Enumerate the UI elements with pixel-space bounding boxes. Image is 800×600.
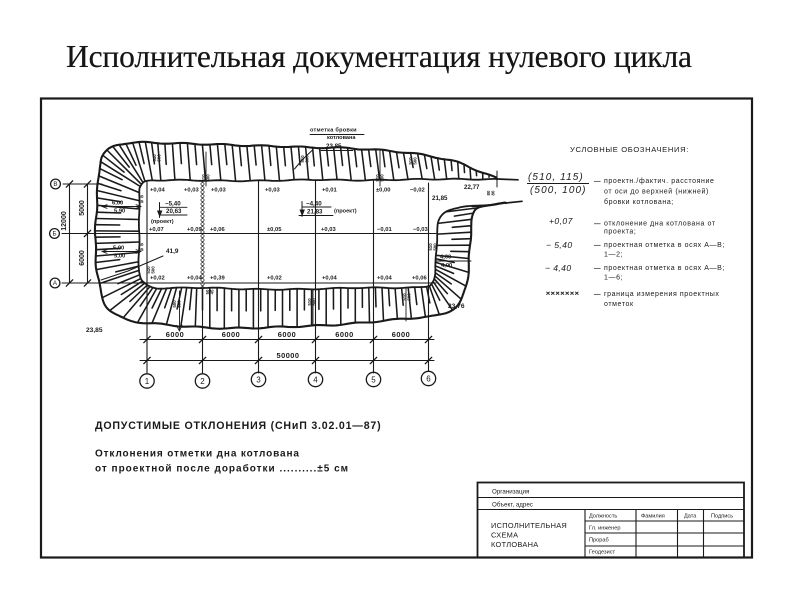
svg-text:6000: 6000 [222, 330, 240, 339]
svg-text:− 5,40: − 5,40 [546, 240, 573, 250]
svg-text:Геодезист: Геодезист [589, 550, 615, 556]
svg-text:Отклонения отметки дна котлова: Отклонения отметки дна котлована [95, 449, 300, 460]
svg-text:5: 5 [371, 375, 376, 384]
svg-text:6000: 6000 [335, 330, 353, 339]
svg-text:+0,04: +0,04 [187, 276, 202, 282]
svg-text:(проект): (проект) [334, 209, 357, 215]
svg-text:Объект, адрес: Объект, адрес [492, 502, 533, 509]
svg-text:+0,01: +0,01 [322, 188, 337, 194]
svg-text:КОТЛОВАНА: КОТЛОВАНА [491, 540, 539, 549]
svg-text:50000: 50000 [276, 351, 299, 360]
svg-text:отметка бровки: отметка бровки [310, 127, 357, 134]
svg-text:500: 500 [305, 155, 310, 163]
svg-text:±0,05: ±0,05 [267, 227, 282, 233]
svg-text:−0,03: −0,03 [413, 227, 428, 233]
svg-text:4: 4 [313, 375, 318, 384]
svg-text:1—6;: 1—6; [604, 275, 623, 282]
svg-text:23,85: 23,85 [326, 143, 342, 150]
svg-text:80: 80 [491, 190, 496, 195]
svg-text:500: 500 [312, 298, 317, 306]
svg-text:+0,04: +0,04 [150, 188, 165, 194]
svg-text:Фамилия: Фамилия [641, 514, 665, 520]
svg-text:500: 500 [151, 266, 156, 274]
svg-text:отклонение дна котлована от: отклонение дна котлована от [604, 221, 716, 228]
svg-text:500: 500 [407, 293, 412, 301]
svg-text:6: 6 [426, 374, 431, 383]
svg-text:+0,04: +0,04 [322, 276, 337, 282]
svg-text:граница измерения проектных: граница измерения проектных [604, 291, 720, 298]
svg-text:—: — [594, 291, 601, 298]
svg-text:500: 500 [206, 174, 211, 182]
svg-text:котлована: котлована [327, 135, 356, 141]
svg-text:+0,39: +0,39 [210, 276, 225, 282]
svg-text:Подпись: Подпись [711, 514, 733, 520]
svg-text:−0,02: −0,02 [410, 188, 425, 194]
svg-text:23,85: 23,85 [86, 327, 103, 334]
svg-text:от проектной после доработки .: от проектной после доработки ..........±… [95, 463, 349, 475]
svg-text:+0,02: +0,02 [267, 276, 282, 282]
svg-text:проектная отметка в осях А—В;: проектная отметка в осях А—В; [604, 242, 725, 249]
svg-text:—: — [594, 221, 601, 228]
svg-text:20,63: 20,63 [166, 208, 182, 215]
svg-text:—: — [594, 178, 601, 185]
svg-text:21,85: 21,85 [432, 195, 448, 202]
svg-text:−5,40: −5,40 [165, 201, 181, 208]
svg-text:5,00: 5,00 [114, 254, 125, 260]
svg-text:3: 3 [256, 375, 261, 384]
svg-text:+0,07: +0,07 [149, 227, 164, 233]
svg-text:5,00: 5,00 [113, 246, 124, 252]
svg-text:22,77: 22,77 [464, 184, 480, 191]
svg-text:Гл. инженер: Гл. инженер [589, 526, 620, 532]
svg-text:−4,40: −4,40 [306, 201, 322, 208]
svg-text:500: 500 [413, 157, 418, 165]
svg-text:+0,03: +0,03 [184, 188, 199, 194]
svg-text:В: В [53, 181, 57, 188]
svg-text:Организация: Организация [492, 489, 529, 496]
svg-text:500: 500 [157, 154, 162, 162]
svg-text:500: 500 [433, 243, 438, 251]
svg-text:отметок: отметок [604, 301, 634, 308]
svg-text:А: А [53, 280, 58, 287]
svg-text:6000: 6000 [392, 330, 410, 339]
svg-text:(510, 115): (510, 115) [528, 172, 584, 183]
svg-text:+0,02: +0,02 [150, 276, 165, 282]
svg-text:+0,09: +0,09 [187, 227, 202, 233]
svg-text:Дата: Дата [684, 514, 697, 520]
svg-text:5,90: 5,90 [114, 209, 125, 215]
svg-text:− 4,40: − 4,40 [545, 263, 572, 273]
svg-text:5000: 5000 [79, 200, 86, 216]
svg-text:2: 2 [200, 377, 205, 386]
svg-text:+0,03: +0,03 [321, 227, 336, 233]
svg-text:41,9: 41,9 [166, 248, 179, 255]
svg-text:12000: 12000 [61, 211, 68, 231]
svg-text:55: 55 [139, 247, 144, 252]
svg-text:−0,01: −0,01 [377, 227, 392, 233]
svg-text:1—2;: 1—2; [604, 252, 623, 259]
svg-text:(500, 100): (500, 100) [530, 185, 587, 196]
svg-text:6,00: 6,00 [112, 201, 123, 207]
svg-text:бровки котлована;: бровки котлована; [604, 198, 674, 206]
svg-text:+0,06: +0,06 [412, 276, 427, 282]
svg-text:Должность: Должность [589, 514, 617, 520]
svg-text:проектн./фактич. расстояние: проектн./фактич. расстояние [604, 178, 715, 185]
svg-text:+0,03: +0,03 [265, 188, 280, 194]
svg-text:УСЛОВНЫЕ ОБОЗНАЧЕНИЯ:: УСЛОВНЫЕ ОБОЗНАЧЕНИЯ: [570, 145, 689, 154]
svg-text:ДОПУСТИМЫЕ ОТКЛОНЕНИЯ (СНиП 3.: ДОПУСТИМЫЕ ОТКЛОНЕНИЯ (СНиП 3.02.01—87) [95, 420, 381, 432]
svg-text:6000: 6000 [79, 250, 86, 266]
svg-text:Б: Б [52, 231, 56, 238]
svg-text:500: 500 [380, 174, 385, 182]
svg-text:23,76: 23,76 [448, 303, 465, 310]
svg-text:от оси до верхней (нижней): от оси до верхней (нижней) [604, 188, 709, 196]
svg-text:1: 1 [145, 377, 150, 386]
svg-text:+0,06: +0,06 [210, 227, 225, 233]
svg-text:(проект): (проект) [151, 219, 174, 225]
svg-text:65: 65 [139, 199, 144, 204]
svg-text:+0,07: +0,07 [549, 216, 574, 226]
svg-text:—: — [594, 265, 601, 272]
svg-text:проектная отметка в осях А—В;: проектная отметка в осях А—В; [604, 265, 725, 272]
svg-text:45: 45 [210, 289, 215, 294]
svg-text:±0,00: ±0,00 [376, 188, 390, 194]
svg-text:4,00: 4,00 [441, 263, 452, 269]
svg-text:СХЕМА: СХЕМА [491, 531, 518, 540]
svg-text:—: — [594, 242, 601, 249]
svg-text:Прораб: Прораб [589, 538, 609, 544]
svg-text:590: 590 [177, 300, 182, 308]
svg-text:21,83: 21,83 [307, 209, 323, 216]
svg-text:проекта;: проекта; [604, 229, 636, 236]
svg-text:ИСПОЛНИТЕЛЬНАЯ: ИСПОЛНИТЕЛЬНАЯ [491, 521, 567, 530]
svg-text:4,00: 4,00 [440, 255, 451, 261]
svg-text:+0,04: +0,04 [377, 276, 392, 282]
svg-text:6000: 6000 [166, 330, 184, 339]
svg-text:+0,03: +0,03 [211, 188, 226, 194]
svg-text:6000: 6000 [278, 330, 296, 339]
